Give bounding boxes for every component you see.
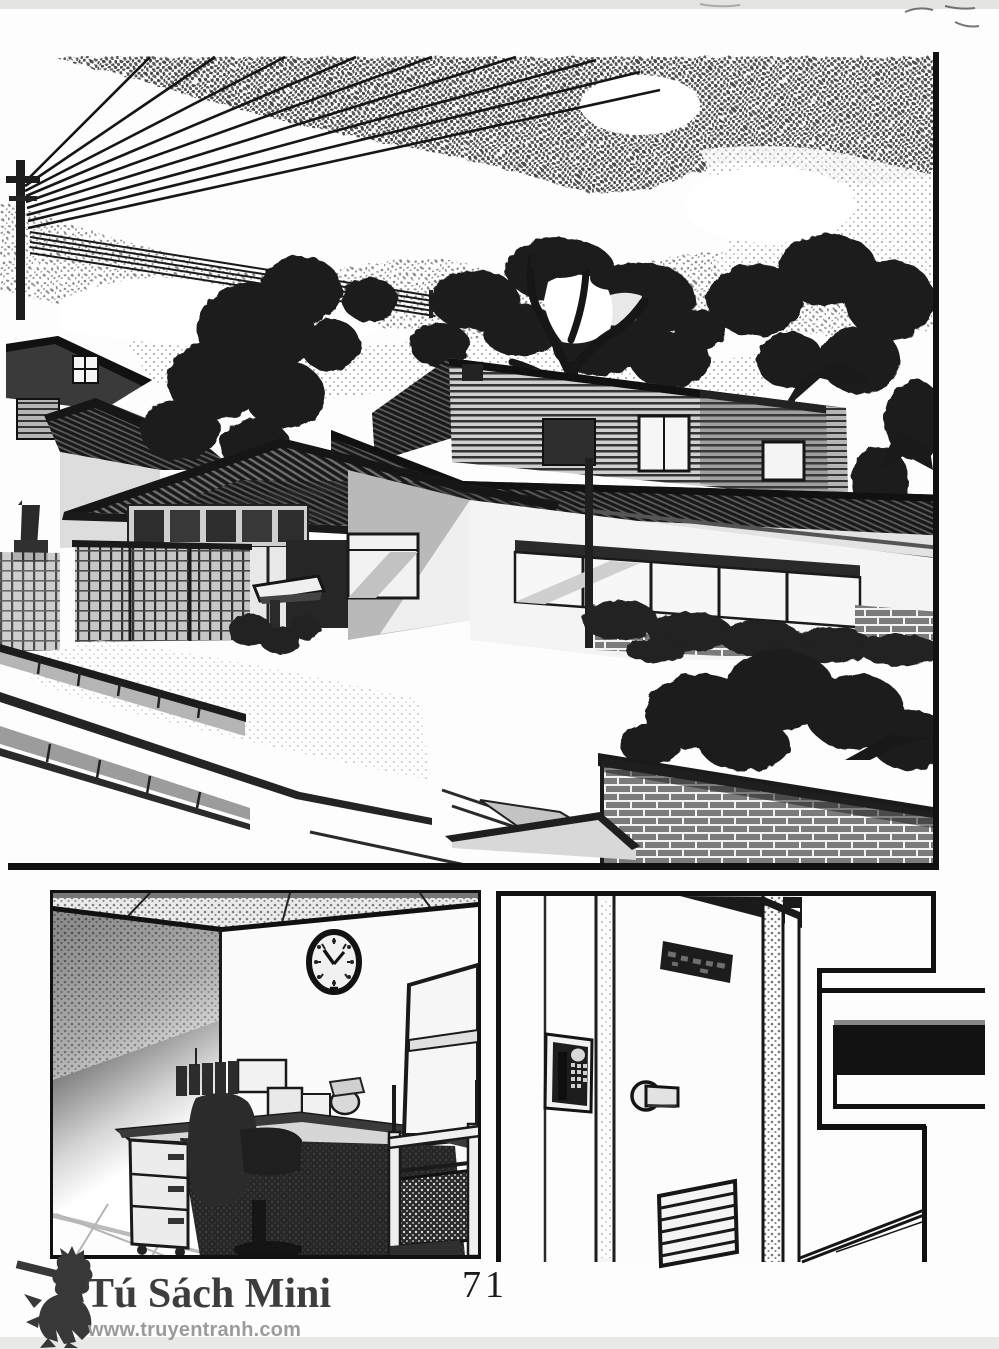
svg-text:Tú Sách Mini: Tú Sách Mini: [86, 1271, 331, 1317]
svg-text:71: 71: [462, 1264, 508, 1306]
svg-text:www.truyentranh.com: www.truyentranh.com: [87, 1319, 301, 1341]
